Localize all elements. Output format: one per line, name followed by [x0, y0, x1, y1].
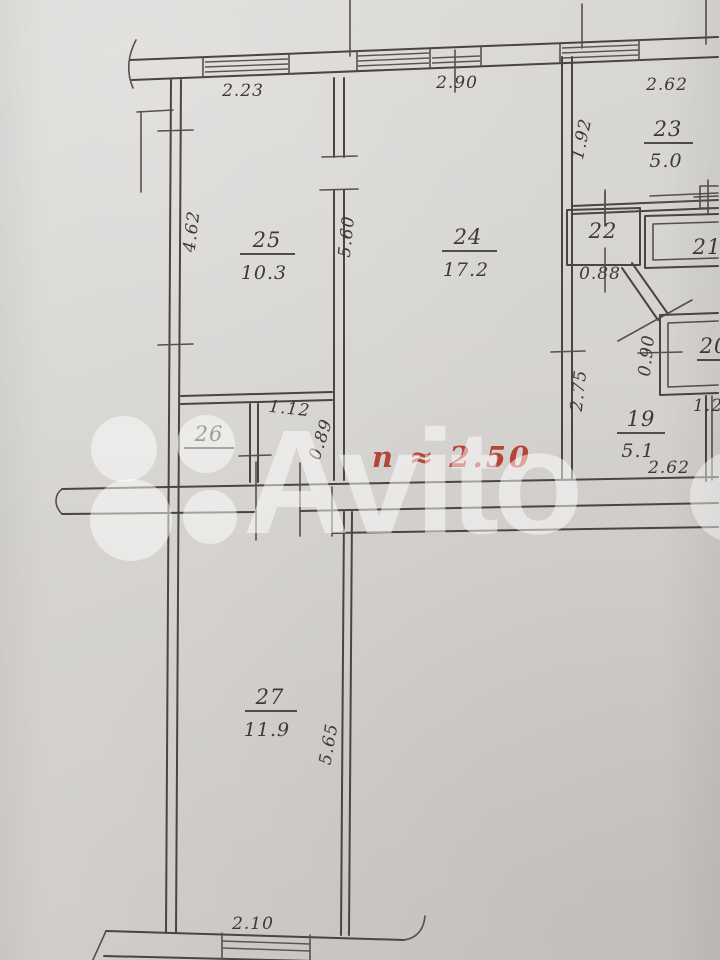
room-22-number: 22 [588, 219, 618, 243]
room-19-number: 19 [627, 407, 656, 431]
dim-bottom-room27: 2.10 [231, 914, 274, 934]
avito-logo-circle [177, 415, 235, 473]
room-23-area: 5.0 [649, 150, 682, 172]
floorplan-photo: 25 10.3 24 17.2 23 5.0 22 21 20 19 5.1 2… [0, 0, 720, 960]
dim-below-room19: 2.62 [647, 458, 690, 478]
dim-below-room22: 0.88 [579, 264, 621, 284]
room-27-area: 11.9 [244, 719, 290, 741]
avito-logo-circle [91, 416, 157, 482]
dim-left-room25: 4.62 [179, 209, 204, 254]
room27-right-wall [341, 512, 352, 935]
dim-wall-25-24: 5.60 [335, 215, 359, 259]
dim-below-room20: 1.2 [693, 396, 720, 416]
dim-room27-wall: 5.65 [316, 722, 343, 767]
diagonal-door [618, 263, 692, 341]
dim-top-room24: 2.90 [435, 73, 478, 93]
avito-watermark: Avito [90, 400, 720, 565]
room-21-number: 21 [692, 235, 720, 259]
room-25-number: 25 [252, 228, 282, 252]
avito-watermark-text: Avito [243, 400, 578, 565]
room-25-area: 10.3 [241, 262, 287, 284]
room-24-area: 17.2 [443, 259, 489, 281]
room-20-number: 20 [699, 334, 720, 358]
avito-logo-circle-partial [690, 451, 720, 543]
dim-top-room25: 2.23 [221, 81, 264, 101]
room-23-number: 23 [653, 117, 683, 141]
dim-left-room20: 0.90 [635, 334, 659, 378]
room-24-number: 24 [453, 225, 483, 249]
avito-logo-circle [183, 490, 237, 544]
floorplan-drawing: 25 10.3 24 17.2 23 5.0 22 21 20 19 5.1 2… [0, 0, 720, 960]
room-27-number: 27 [255, 685, 285, 709]
avito-logo-circle [90, 479, 172, 561]
dim-top-room23: 2.62 [645, 75, 688, 95]
